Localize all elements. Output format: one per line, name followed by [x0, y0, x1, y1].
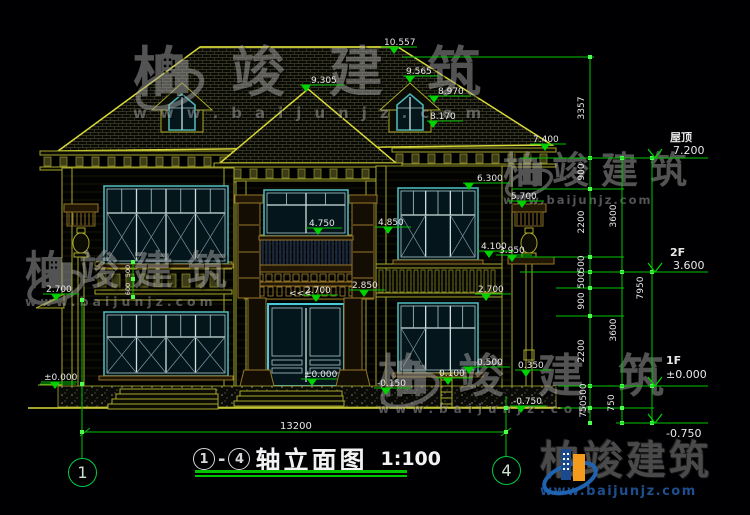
- svg-text:500: 500: [577, 255, 587, 272]
- svg-text:3600: 3600: [609, 318, 619, 341]
- axis-bubble-1: 1: [68, 458, 97, 487]
- svg-text:0.350: 0.350: [518, 361, 544, 371]
- svg-text:7.400: 7.400: [533, 135, 559, 145]
- svg-text:±0.000: ±0.000: [304, 370, 338, 380]
- svg-text:7950: 7950: [636, 276, 646, 299]
- svg-text:8.970: 8.970: [438, 87, 464, 97]
- svg-text:±0.000: ±0.000: [44, 373, 78, 383]
- svg-text:9.305: 9.305: [311, 76, 337, 86]
- axis-circle-1: 1: [193, 448, 215, 470]
- svg-text:9.565: 9.565: [406, 67, 432, 77]
- svg-text:1F: 1F: [666, 354, 681, 367]
- svg-text:2.700: 2.700: [46, 285, 72, 295]
- axis-circle-4: 4: [228, 448, 250, 470]
- svg-text:900: 900: [577, 163, 587, 180]
- svg-text:750: 750: [579, 400, 589, 417]
- svg-text:600: 600: [124, 283, 132, 295]
- svg-text:屋顶: 屋顶: [670, 131, 692, 144]
- svg-text:13200: 13200: [280, 421, 312, 432]
- title-scale: 1:100: [381, 448, 441, 470]
- svg-text:7.200: 7.200: [673, 144, 705, 157]
- svg-text:500: 500: [124, 265, 132, 277]
- title-underline: [195, 470, 407, 473]
- svg-text:900: 900: [577, 292, 587, 309]
- svg-text:500: 500: [579, 383, 589, 400]
- axis-bubble-4: 4: [492, 456, 521, 485]
- svg-text:2200: 2200: [577, 210, 587, 233]
- svg-text:5.700: 5.700: [511, 192, 537, 202]
- svg-text:<<<: <<<: [289, 289, 312, 299]
- title-underline-2: [195, 475, 407, 477]
- svg-text:0.100: 0.100: [439, 369, 465, 379]
- svg-text:0.500: 0.500: [477, 358, 503, 368]
- svg-text:-0.150: -0.150: [377, 379, 406, 389]
- svg-text:-0.750: -0.750: [513, 397, 542, 407]
- svg-text:3357: 3357: [577, 97, 587, 120]
- svg-text:8.170: 8.170: [430, 112, 456, 122]
- svg-text:3.950: 3.950: [499, 246, 525, 256]
- svg-text:2.850: 2.850: [352, 281, 378, 291]
- svg-text:3.600: 3.600: [673, 259, 705, 272]
- svg-text:2200: 2200: [577, 339, 587, 362]
- axis-dash: -: [218, 449, 225, 470]
- dimension-annotations: 10.5579.5658.9708.1709.3057.4006.3005.70…: [0, 0, 750, 515]
- svg-text:500: 500: [577, 271, 587, 288]
- svg-text:2F: 2F: [670, 246, 685, 259]
- svg-text:3600: 3600: [609, 204, 619, 227]
- svg-text:10.557: 10.557: [384, 38, 416, 48]
- svg-text:4.850: 4.850: [378, 218, 404, 228]
- svg-text:±0.000: ±0.000: [666, 368, 707, 381]
- svg-text:6.300: 6.300: [477, 174, 503, 184]
- svg-text:2.700: 2.700: [478, 285, 504, 295]
- svg-text:-0.750: -0.750: [666, 427, 701, 440]
- svg-text:4.750: 4.750: [309, 219, 335, 229]
- svg-text:750: 750: [607, 394, 617, 411]
- cad-elevation-page: 柏竣建筑 www.baijunjz.com 柏竣建筑 www.baijunjz.…: [0, 0, 750, 515]
- dimension-text: 10.5579.5658.9708.1709.3057.4006.3005.70…: [44, 38, 707, 440]
